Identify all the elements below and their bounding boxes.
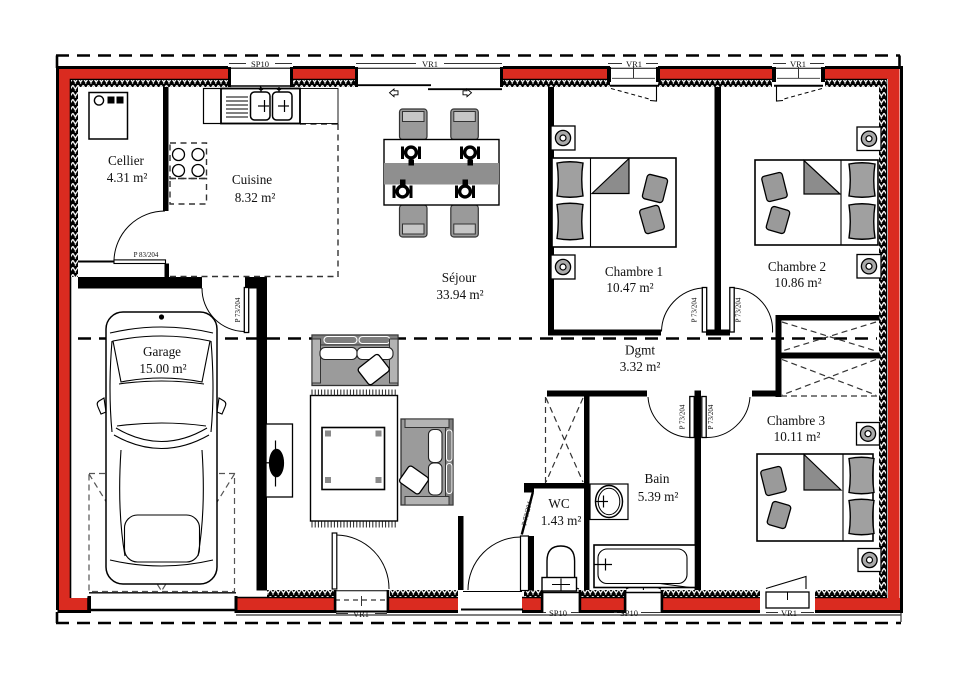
svg-text:Chambre 1: Chambre 1 xyxy=(605,264,663,279)
svg-text:Chambre 2: Chambre 2 xyxy=(768,259,826,274)
svg-text:P 73/204: P 73/204 xyxy=(679,404,687,429)
svg-text:10.11 m²: 10.11 m² xyxy=(774,429,821,444)
svg-text:5.39 m²: 5.39 m² xyxy=(638,489,679,504)
svg-text:Cuisine: Cuisine xyxy=(232,172,272,187)
svg-text:SP10: SP10 xyxy=(251,59,269,69)
svg-text:Bain: Bain xyxy=(645,471,670,486)
svg-text:Cellier: Cellier xyxy=(108,153,144,168)
svg-text:1.43 m²: 1.43 m² xyxy=(541,513,582,528)
svg-text:SP10: SP10 xyxy=(620,608,638,618)
svg-text:4.31 m²: 4.31 m² xyxy=(107,170,148,185)
svg-text:P 73/204: P 73/204 xyxy=(691,297,699,322)
svg-text:10.86 m²: 10.86 m² xyxy=(774,275,821,290)
svg-text:Dgmt: Dgmt xyxy=(625,343,655,358)
svg-text:10.47 m²: 10.47 m² xyxy=(606,280,653,295)
svg-text:SP10: SP10 xyxy=(549,608,567,618)
svg-text:P 73/204: P 73/204 xyxy=(735,297,743,322)
svg-text:VR1: VR1 xyxy=(790,59,806,69)
svg-text:3.32 m²: 3.32 m² xyxy=(620,359,661,374)
svg-text:VR1: VR1 xyxy=(626,59,642,69)
svg-text:Séjour: Séjour xyxy=(442,270,477,285)
svg-text:VR1: VR1 xyxy=(422,59,438,69)
svg-text:P 73/204: P 73/204 xyxy=(707,404,715,429)
svg-text:P 83/204: P 83/204 xyxy=(134,251,159,259)
svg-text:Garage: Garage xyxy=(143,344,181,359)
svg-text:33.94 m²: 33.94 m² xyxy=(436,287,483,302)
svg-text:VR1: VR1 xyxy=(353,609,369,619)
svg-text:8.32 m²: 8.32 m² xyxy=(235,190,276,205)
svg-text:VR1: VR1 xyxy=(781,608,797,618)
svg-text:Chambre 3: Chambre 3 xyxy=(767,413,826,428)
svg-text:P 73/204: P 73/204 xyxy=(234,297,242,322)
svg-text:WC: WC xyxy=(548,496,569,511)
svg-text:15.00 m²: 15.00 m² xyxy=(139,361,186,376)
